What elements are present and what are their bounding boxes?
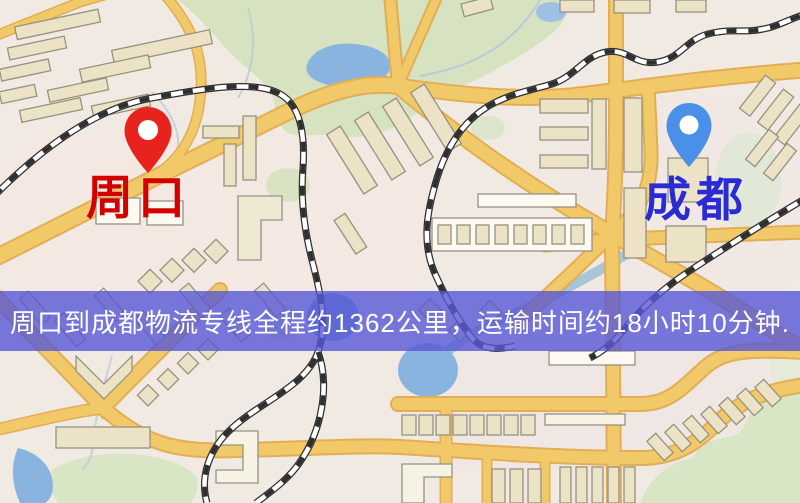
origin-city-label: 周口 [86,174,190,221]
route-info-banner: 周口到成都物流专线全程约1362公里，运输时间约18小时10分钟. [0,291,800,351]
route-info-text: 周口到成都物流专线全程约1362公里，运输时间约18小时10分钟. [10,303,790,340]
map-canvas [0,0,800,503]
destination-city-label: 成都 [644,176,748,223]
logistics-route-map: 周口 成都 周口到成都物流专线全程约1362公里，运输时间约18小时10分钟. [0,0,800,503]
